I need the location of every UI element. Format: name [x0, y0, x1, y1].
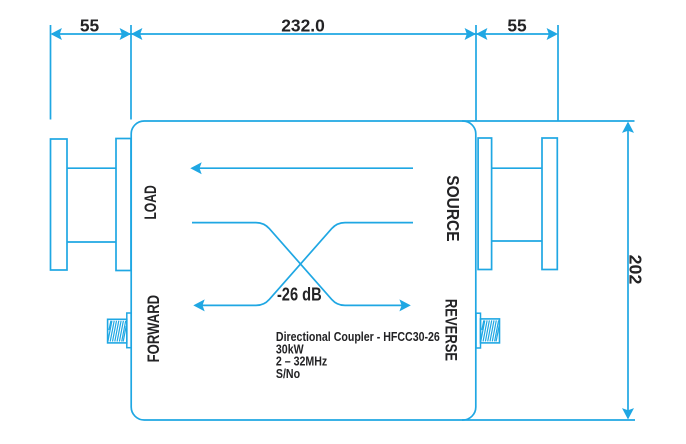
- svg-text:55: 55: [507, 16, 527, 36]
- svg-text:REVERSE: REVERSE: [441, 299, 459, 361]
- svg-text:55: 55: [80, 16, 100, 36]
- svg-text:-26 dB: -26 dB: [277, 284, 322, 305]
- svg-text:LOAD: LOAD: [142, 185, 160, 220]
- svg-text:202: 202: [625, 255, 645, 285]
- svg-text:SOURCE: SOURCE: [443, 175, 463, 241]
- svg-text:FORWARD: FORWARD: [146, 295, 164, 363]
- svg-text:S/No: S/No: [276, 367, 300, 381]
- svg-text:232.0: 232.0: [281, 16, 325, 36]
